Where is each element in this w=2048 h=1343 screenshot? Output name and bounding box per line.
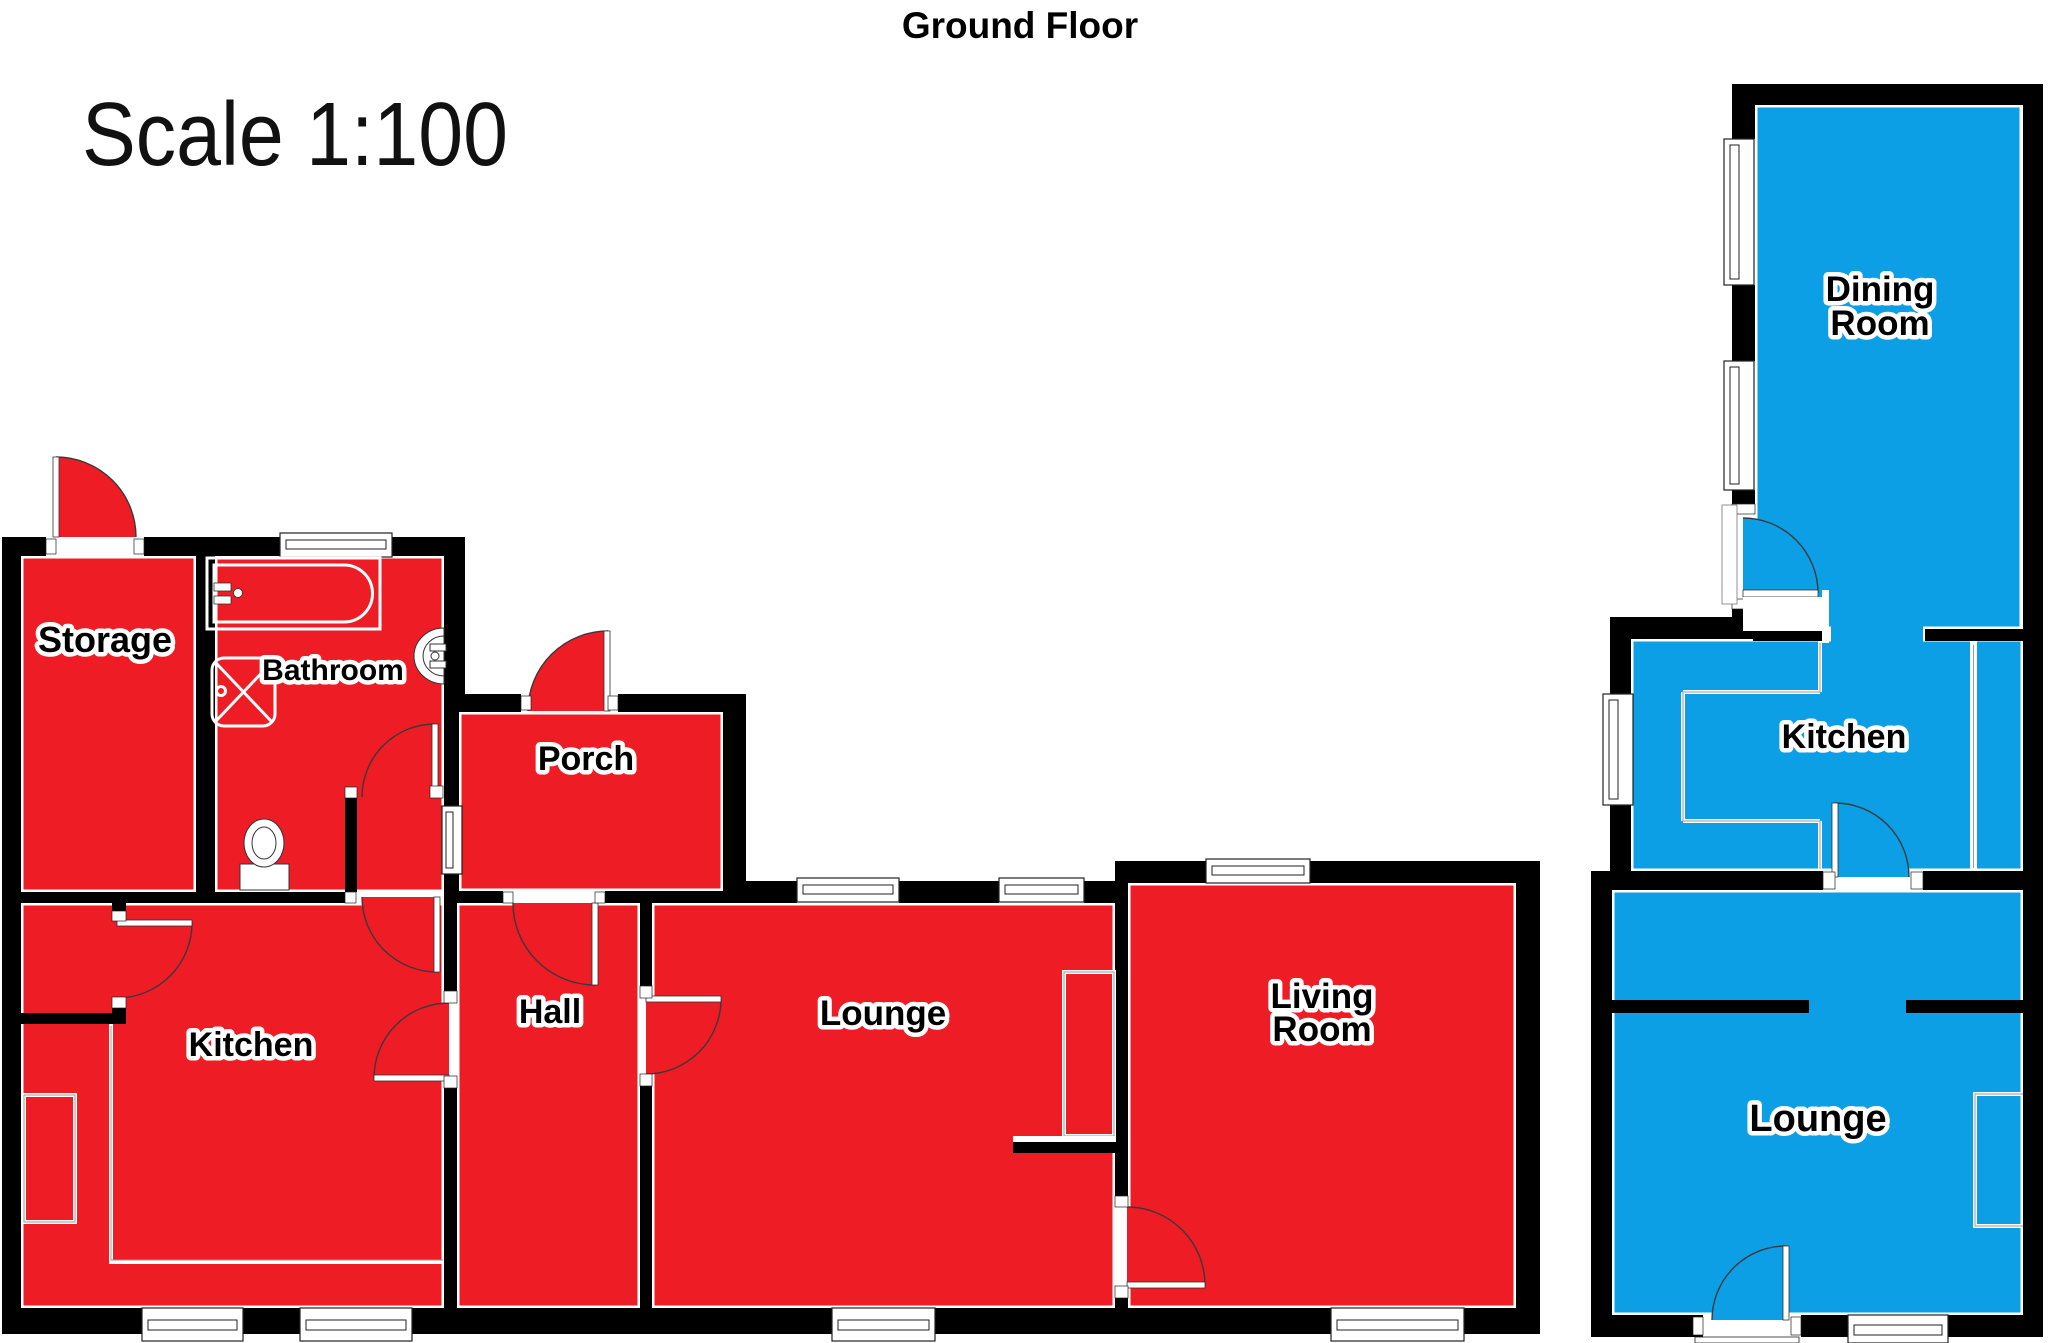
svg-text:Room: Room bbox=[1272, 1010, 1371, 1049]
svg-text:Scale 1:100: Scale 1:100 bbox=[82, 85, 508, 185]
svg-text:Ground Floor: Ground Floor bbox=[902, 5, 1138, 46]
svg-text:Lounge: Lounge bbox=[1749, 1098, 1886, 1140]
svg-text:Room: Room bbox=[1830, 304, 1929, 343]
svg-text:Hall: Hall bbox=[519, 993, 581, 1031]
svg-text:Storage: Storage bbox=[38, 619, 172, 660]
svg-text:Lounge: Lounge bbox=[820, 994, 946, 1033]
svg-text:Bathroom: Bathroom bbox=[262, 654, 404, 687]
svg-text:Kitchen: Kitchen bbox=[1782, 718, 1907, 756]
svg-text:Porch: Porch bbox=[538, 740, 634, 778]
svg-text:Kitchen: Kitchen bbox=[189, 1026, 314, 1064]
